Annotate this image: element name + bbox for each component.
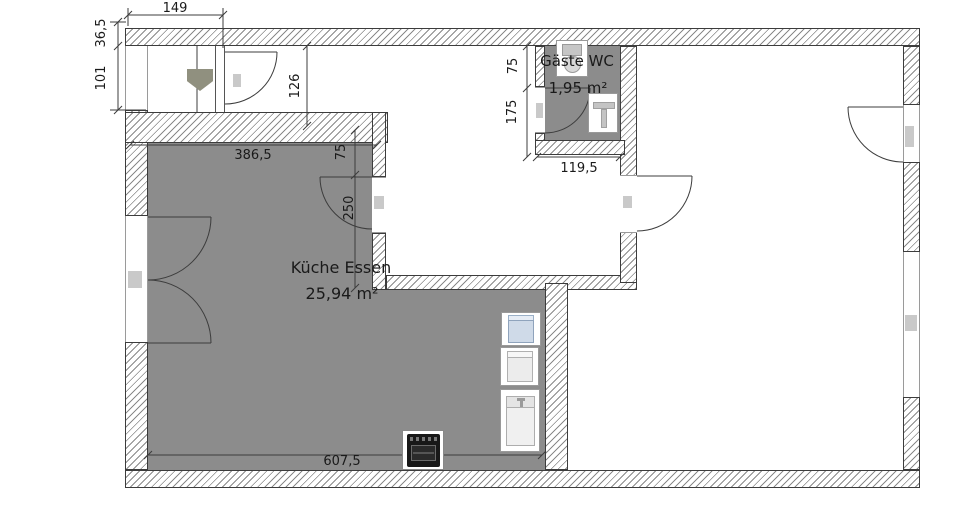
right-door-pane [905, 126, 914, 147]
dim-kitchen-door-offset: 75 [334, 132, 348, 172]
french-door-arcs [148, 217, 211, 343]
kitchen-room-size: 25,94 m² [272, 284, 412, 303]
dim-top-width: 149 [155, 1, 195, 15]
dim-left-window: 101 [94, 58, 108, 98]
dim-hall-depth: 126 [288, 66, 302, 106]
fridge-icon [501, 312, 541, 346]
dim-line-36-5 [110, 18, 126, 50]
dim-kitchen-length: 607,5 [322, 454, 362, 468]
pedestal-sink-icon [588, 93, 618, 133]
dim-wc-width: 119,5 [559, 161, 599, 175]
cabinet-icon [500, 347, 539, 386]
oven-icon [402, 430, 444, 470]
wc-room-size: 1,95 m² [518, 79, 638, 97]
entry-door-pane [233, 74, 241, 87]
wc-room-name: Gäste WC [517, 52, 637, 70]
dim-kitchen-opening: 250 [342, 188, 356, 228]
french-door-pane [128, 271, 142, 288]
right-window-pane [905, 315, 917, 331]
right-door-arc [848, 107, 903, 162]
dim-wall-thickness: 36,5 [94, 13, 108, 53]
floor-plan: 149 36,5 101 126 75 250 386,5 607,5 75 1… [0, 0, 960, 522]
wc-door-pane [536, 103, 543, 118]
sink-cabinet-icon [500, 389, 540, 452]
kitchen-door-pane [374, 196, 384, 209]
dim-line-101 [110, 46, 146, 114]
dim-wc-door-height: 175 [505, 92, 519, 132]
livingroom-door-arc [637, 176, 692, 231]
livingroom-door-pane [623, 196, 632, 208]
kitchen-room-name: Küche Essen [271, 258, 411, 277]
dim-kitchen-width: 386,5 [233, 148, 273, 162]
plan-linework [0, 0, 960, 522]
dim-line-126 [303, 42, 311, 130]
